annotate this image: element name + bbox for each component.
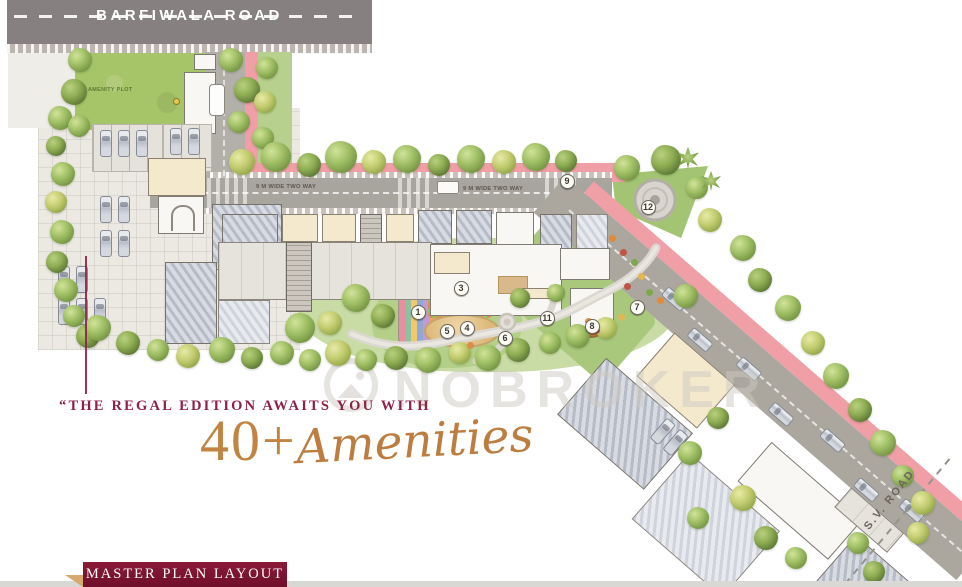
tree-icon xyxy=(754,526,778,550)
tree-icon xyxy=(63,305,85,327)
tree-icon xyxy=(261,142,291,172)
tree-icon xyxy=(686,177,708,199)
car-icon xyxy=(118,196,130,223)
tree-icon xyxy=(698,208,722,232)
shrub-icon xyxy=(609,235,616,242)
tree-icon xyxy=(318,311,342,335)
tree-icon xyxy=(801,331,825,355)
shrub-icon xyxy=(638,273,645,280)
tree-icon xyxy=(384,346,408,370)
tree-icon xyxy=(270,341,294,365)
sidewalk xyxy=(7,44,372,53)
building-block xyxy=(576,214,608,250)
amenity-marker-7: 7 xyxy=(630,300,645,315)
tree-icon xyxy=(687,507,709,529)
tree-icon xyxy=(492,150,516,174)
tree-icon xyxy=(428,154,450,176)
building-block xyxy=(434,252,470,274)
internal-road-label: 9 M WIDE TWO WAY xyxy=(463,185,523,191)
barfiwala-road-label: BARFIWALA ROAD xyxy=(7,7,372,24)
building-block xyxy=(456,210,492,244)
tree-icon xyxy=(651,145,681,175)
shrub-icon xyxy=(624,283,631,290)
tree-icon xyxy=(457,145,485,173)
tree-icon xyxy=(730,235,756,261)
building-block xyxy=(218,242,432,300)
shrub-icon xyxy=(646,289,653,296)
vehicle xyxy=(209,84,225,116)
tree-icon xyxy=(228,111,250,133)
tree-icon xyxy=(61,79,87,105)
tree-icon xyxy=(475,345,501,371)
internal-road-label: 9 M WIDE TWO WAY xyxy=(256,183,316,189)
tree-icon xyxy=(547,284,565,302)
building-block xyxy=(148,158,206,196)
tree-icon xyxy=(522,143,550,171)
car-icon xyxy=(188,128,200,155)
tree-icon xyxy=(176,344,200,368)
tree-icon xyxy=(775,295,801,321)
tree-icon xyxy=(785,547,807,569)
tree-icon xyxy=(863,561,885,583)
car-icon xyxy=(170,128,182,155)
amenity-marker-5: 5 xyxy=(440,324,455,339)
building-block xyxy=(322,214,356,242)
amenity-plot-label: AMENITY PLOT xyxy=(88,86,142,92)
tree-icon xyxy=(325,141,357,173)
tree-icon xyxy=(614,155,640,181)
amenity-marker-12: 12 xyxy=(641,200,656,215)
tree-icon xyxy=(241,347,263,369)
tree-icon xyxy=(54,278,78,302)
master-plan-banner: MASTER PLAN LAYOUT xyxy=(83,562,287,587)
tree-icon xyxy=(555,150,577,172)
tree-icon xyxy=(371,304,395,328)
building-block xyxy=(286,242,312,312)
plot-marker-dot xyxy=(173,98,180,105)
tree-icon xyxy=(907,522,929,544)
tree-icon xyxy=(46,251,68,273)
tree-icon xyxy=(147,339,169,361)
car-icon xyxy=(100,130,112,157)
tree-icon xyxy=(254,91,276,113)
car-icon xyxy=(100,196,112,223)
amenity-marker-9: 9 xyxy=(560,174,575,189)
tree-icon xyxy=(209,337,235,363)
tree-icon xyxy=(229,149,255,175)
amenity-marker-1: 1 xyxy=(411,305,426,320)
car-icon xyxy=(136,130,148,157)
tree-icon xyxy=(393,145,421,173)
tree-icon xyxy=(823,363,849,389)
utility-structure xyxy=(194,54,216,70)
tree-icon xyxy=(68,48,92,72)
tree-icon xyxy=(911,491,935,515)
ribbon-fold xyxy=(65,575,83,587)
tree-icon xyxy=(285,313,315,343)
amenity-marker-3: 3 xyxy=(454,281,469,296)
crosswalk xyxy=(398,178,432,208)
tree-icon xyxy=(678,441,702,465)
car-icon xyxy=(100,230,112,257)
amenities-script-word: Amenities xyxy=(295,412,535,471)
road-centerline xyxy=(223,60,225,176)
amenity-marker-6: 6 xyxy=(498,331,513,346)
amenity-marker-4: 4 xyxy=(460,321,475,336)
tree-icon xyxy=(116,331,140,355)
building-block xyxy=(386,214,414,242)
tree-icon xyxy=(51,162,75,186)
tree-icon xyxy=(256,57,278,79)
tree-icon xyxy=(85,315,111,341)
tree-icon xyxy=(299,349,321,371)
vehicle xyxy=(437,181,459,194)
tree-icon xyxy=(50,220,74,244)
tree-icon xyxy=(707,407,729,429)
tree-icon xyxy=(415,347,441,373)
amenities-count: 40+ xyxy=(200,412,297,470)
tree-icon xyxy=(510,288,530,308)
car-icon xyxy=(118,130,130,157)
tree-icon xyxy=(362,150,386,174)
shrub-icon xyxy=(657,297,664,304)
tree-icon xyxy=(847,532,869,554)
building-block xyxy=(165,262,217,344)
accent-vertical-line xyxy=(85,256,87,394)
shrub-icon xyxy=(467,342,474,349)
amenity-marker-8: 8 xyxy=(585,319,600,334)
building-block xyxy=(496,212,534,246)
tree-icon xyxy=(342,284,370,312)
master-plan-canvas: BARFIWALA ROAD 9 M WIDE TWO WAY 9 M WIDE… xyxy=(0,0,962,587)
tree-icon xyxy=(46,136,66,156)
shrub-icon xyxy=(631,259,638,266)
building-block xyxy=(158,196,204,234)
tree-icon xyxy=(68,115,90,137)
tree-icon xyxy=(730,485,756,511)
shrub-icon xyxy=(620,249,627,256)
tree-icon xyxy=(219,48,243,72)
car-icon xyxy=(118,230,130,257)
tree-icon xyxy=(539,332,561,354)
tree-icon xyxy=(748,268,772,292)
tree-icon xyxy=(297,153,321,177)
tree-icon xyxy=(848,398,872,422)
tree-icon xyxy=(674,284,698,308)
tree-icon xyxy=(45,191,67,213)
tree-icon xyxy=(870,430,896,456)
tree-icon xyxy=(355,349,377,371)
building-block xyxy=(282,214,318,242)
tree-icon xyxy=(325,340,351,366)
amenity-marker-11: 11 xyxy=(540,311,555,326)
building-block xyxy=(560,248,610,280)
building-block xyxy=(222,214,278,244)
building-block xyxy=(418,210,452,244)
